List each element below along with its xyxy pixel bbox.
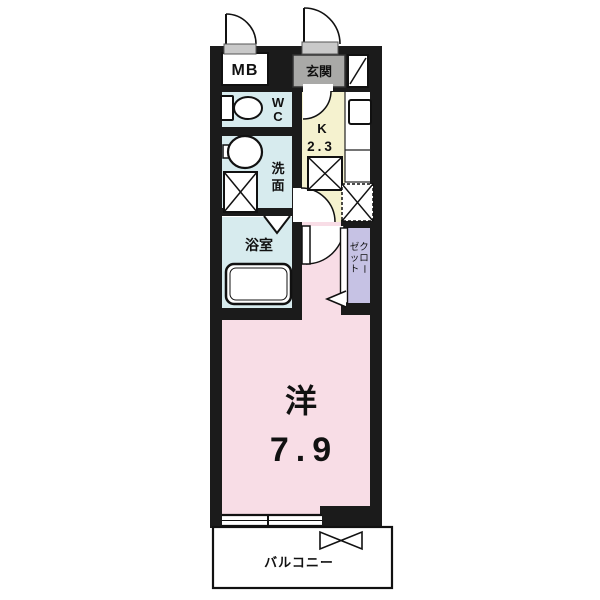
floor-plan-canvas: MB 玄関 W C 洗 面 K 2.3 浴室 ク ロ ー ゼ ッ ト 洋 7.9… [0,0,600,600]
kitchen-sink-counter-icon [308,157,342,190]
washroom-doorway-gap [293,188,302,222]
washroom-label-char2: 面 [271,178,284,193]
mb-doorway [224,44,256,54]
sink-icon [349,100,371,124]
kitchen-label: K [317,121,327,136]
washing-machine-pan-icon [224,172,257,212]
mb-label: MB [232,62,259,79]
balcony-label: バルコニー [264,555,334,570]
bathroom-label: 浴室 [245,237,273,253]
wall-fridge-closet [341,220,382,228]
kitchen-size-label: 2.3 [307,139,335,154]
wall-closet-bottom [341,303,382,315]
closet-label-char5: ッ [350,253,360,264]
closet-label-char2: ロ [359,253,369,264]
washroom-label-char1: 洗 [271,161,284,176]
entrance-door [302,8,340,54]
main-room-door-leaf [302,226,310,264]
wall-wc-washroom [222,127,292,136]
toilet-icon [221,96,262,120]
floor-plan: MB 玄関 W C 洗 面 K 2.3 浴室 ク ロ ー ゼ ッ ト 洋 7.9… [0,0,600,600]
closet-label-char1: ク [359,242,369,253]
wc-label-line1: W [272,95,285,110]
sliding-window [222,514,322,527]
mb-door [224,14,256,54]
wc-label-line2: C [273,109,283,124]
closet-label-char4: ゼ [350,241,360,253]
closet-label-char3: ー [358,264,369,274]
shoe-cabinet [348,55,368,87]
wall-bath-bottom [210,308,302,320]
wall-bottom-right [320,506,382,528]
main-room-size-label: 7.9 [270,431,338,469]
refrigerator-space-icon [342,184,373,221]
entrance-doorway [302,42,338,54]
closet-label-char6: ト [350,264,360,275]
bathtub-icon [226,264,291,304]
main-room-label: 洋 [285,383,317,419]
entrance-label: 玄関 [306,64,332,79]
kitchen-doorway-gap [303,84,333,91]
